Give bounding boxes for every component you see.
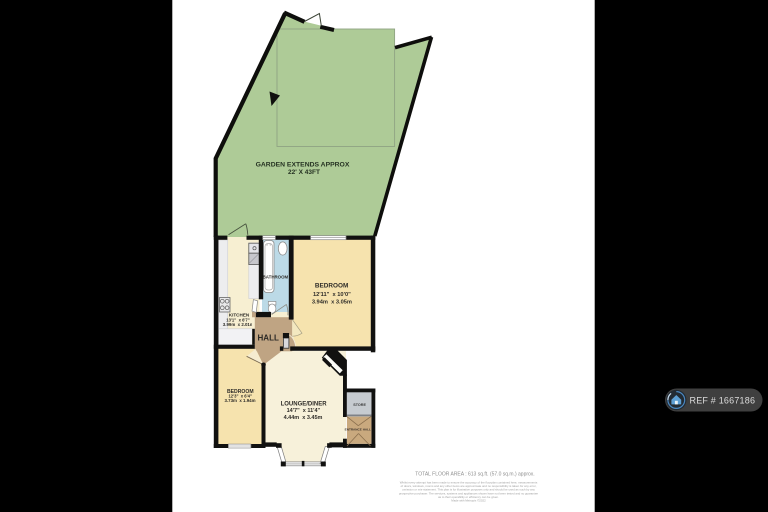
svg-text:4.44m x 3.45m: 4.44m x 3.45m <box>284 415 323 421</box>
svg-text:3.94m x 3.05m: 3.94m x 3.05m <box>312 299 352 305</box>
svg-text:ENTRANCE HALL: ENTRANCE HALL <box>345 428 371 432</box>
svg-text:LOUNGE/DINER: LOUNGE/DINER <box>281 402 328 408</box>
svg-text:STORE: STORE <box>353 403 366 407</box>
svg-text:BEDROOM: BEDROOM <box>315 283 348 290</box>
svg-text:BATHROOM: BATHROOM <box>263 275 289 280</box>
svg-text:Made with Metropix ©2022: Made with Metropix ©2022 <box>451 499 486 503</box>
svg-text:GARDEN EXTENDS APPROX: GARDEN EXTENDS APPROX <box>256 161 350 168</box>
svg-text:12'11" x 10'0": 12'11" x 10'0" <box>313 292 351 298</box>
svg-text:22' X 43FT: 22' X 43FT <box>288 169 320 176</box>
svg-text:HALL: HALL <box>258 333 279 342</box>
svg-text:3.73m x 1.94m: 3.73m x 1.94m <box>224 398 255 403</box>
svg-text:3.99m x 2.01m: 3.99m x 2.01m <box>223 322 254 327</box>
svg-text:REF # 1667186: REF # 1667186 <box>690 396 756 406</box>
svg-text:14'7" x 11'4": 14'7" x 11'4" <box>287 408 321 414</box>
svg-text:TOTAL FLOOR AREA : 613 sq.ft.: TOTAL FLOOR AREA : 613 sq.ft. (57.0 sq.m… <box>415 472 534 478</box>
